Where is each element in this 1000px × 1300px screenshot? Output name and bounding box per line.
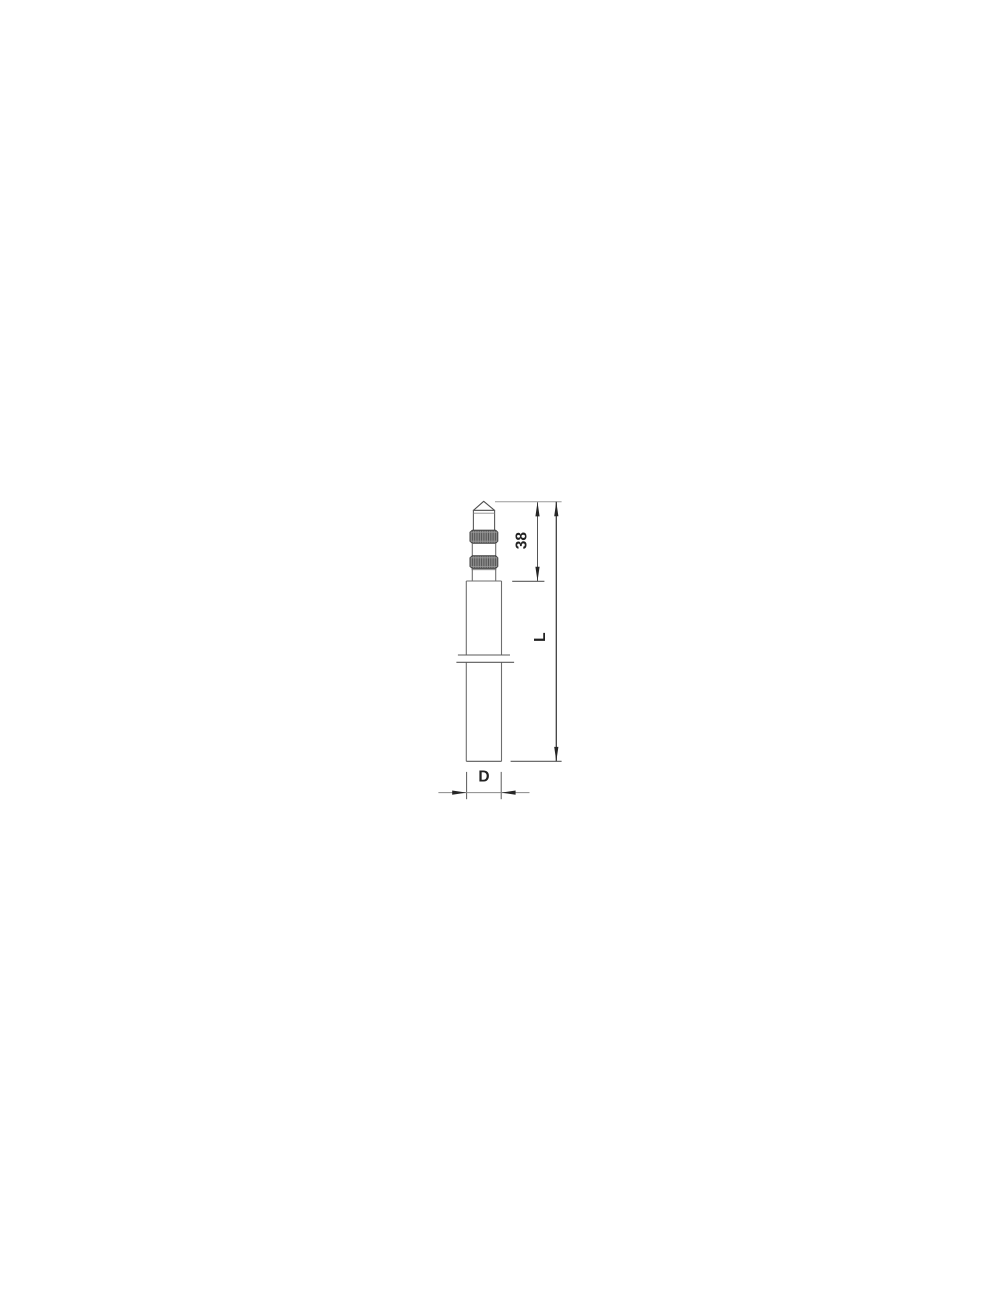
svg-text:L: L (532, 632, 549, 641)
svg-text:D: D (478, 768, 489, 785)
svg-text:38: 38 (513, 532, 530, 550)
